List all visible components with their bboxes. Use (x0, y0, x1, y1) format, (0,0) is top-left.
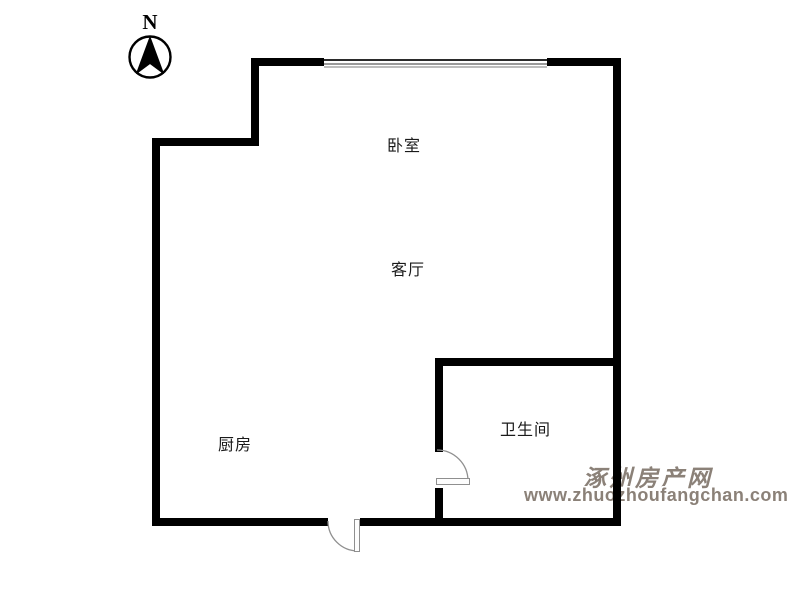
room-label-living-room: 客厅 (391, 262, 425, 280)
wall-upper-step-vertical (251, 58, 259, 146)
window-top-wall (324, 58, 547, 68)
wall-top-left-segment (251, 58, 324, 66)
wall-bottom-left-segment (152, 518, 328, 526)
room-label-bathroom: 卫生间 (500, 422, 551, 440)
wall-right (613, 58, 621, 526)
wall-bathroom-vertical-lower (435, 488, 443, 526)
entry-door-leaf (354, 519, 360, 552)
window-line (324, 59, 547, 61)
bathroom-door-swing-arc (437, 450, 468, 481)
north-indicator: N (120, 10, 190, 85)
wall-upper-step-horizontal (152, 138, 258, 146)
bathroom-door-leaf (436, 478, 470, 485)
window-line (324, 66, 547, 68)
wall-bathroom-vertical-upper (435, 358, 443, 452)
room-label-kitchen: 厨房 (218, 437, 252, 455)
window-line (324, 63, 547, 65)
wall-bottom-right-segment (360, 518, 621, 526)
wall-bathroom-horizontal (435, 358, 621, 366)
wall-left (152, 138, 160, 526)
room-label-bedroom: 卧室 (387, 138, 421, 156)
compass-icon (120, 10, 190, 85)
door-arc-layer (0, 0, 800, 600)
wall-top-right-segment (547, 58, 621, 66)
floor-plan: 涿州房产网 www.zhuozhoufangchan.com N 卧室 客厅 厨… (0, 0, 800, 600)
watermark-site-url: www.zhuozhoufangchan.com (524, 485, 788, 506)
